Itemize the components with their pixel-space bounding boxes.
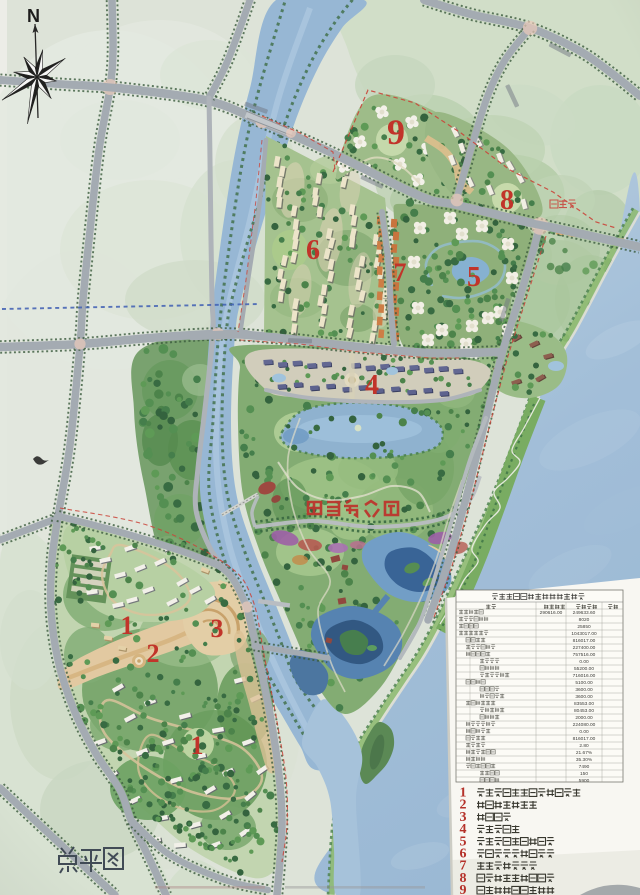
svg-text:757516.00: 757516.00: [573, 652, 596, 658]
svg-text:8020: 8020: [579, 617, 590, 623]
svg-text:2000.00: 2000.00: [575, 715, 593, 721]
svg-text:55200.00: 55200.00: [574, 666, 594, 672]
svg-text:9: 9: [460, 883, 467, 895]
svg-text:35.30%: 35.30%: [576, 757, 593, 763]
svg-text:290616.00: 290616.00: [540, 610, 563, 616]
svg-text:3600.00: 3600.00: [575, 694, 593, 700]
svg-text:249633.60: 249633.60: [573, 610, 596, 616]
svg-text:816017.00: 816017.00: [573, 736, 596, 742]
svg-text:227400.00: 227400.00: [573, 645, 596, 651]
svg-text:21.67%: 21.67%: [576, 750, 593, 756]
svg-text:2.80: 2.80: [579, 743, 589, 749]
svg-text:0.00: 0.00: [579, 659, 589, 665]
svg-text:83553.00: 83553.00: [574, 701, 594, 707]
svg-text:0.00: 0.00: [579, 729, 589, 735]
svg-text:25850: 25850: [577, 624, 591, 630]
svg-text:5900: 5900: [579, 778, 590, 784]
svg-text:716016.00: 716016.00: [573, 673, 596, 679]
svg-text:816017.00: 816017.00: [573, 638, 596, 644]
svg-text:80453.00: 80453.00: [574, 708, 594, 714]
svg-text:224080.00: 224080.00: [573, 722, 596, 728]
svg-text:7490: 7490: [579, 764, 590, 770]
svg-text:3600.00: 3600.00: [575, 687, 593, 693]
svg-text:5100.00: 5100.00: [575, 680, 593, 686]
svg-text:1043017.00: 1043017.00: [571, 631, 597, 637]
svg-text:150: 150: [580, 771, 588, 777]
